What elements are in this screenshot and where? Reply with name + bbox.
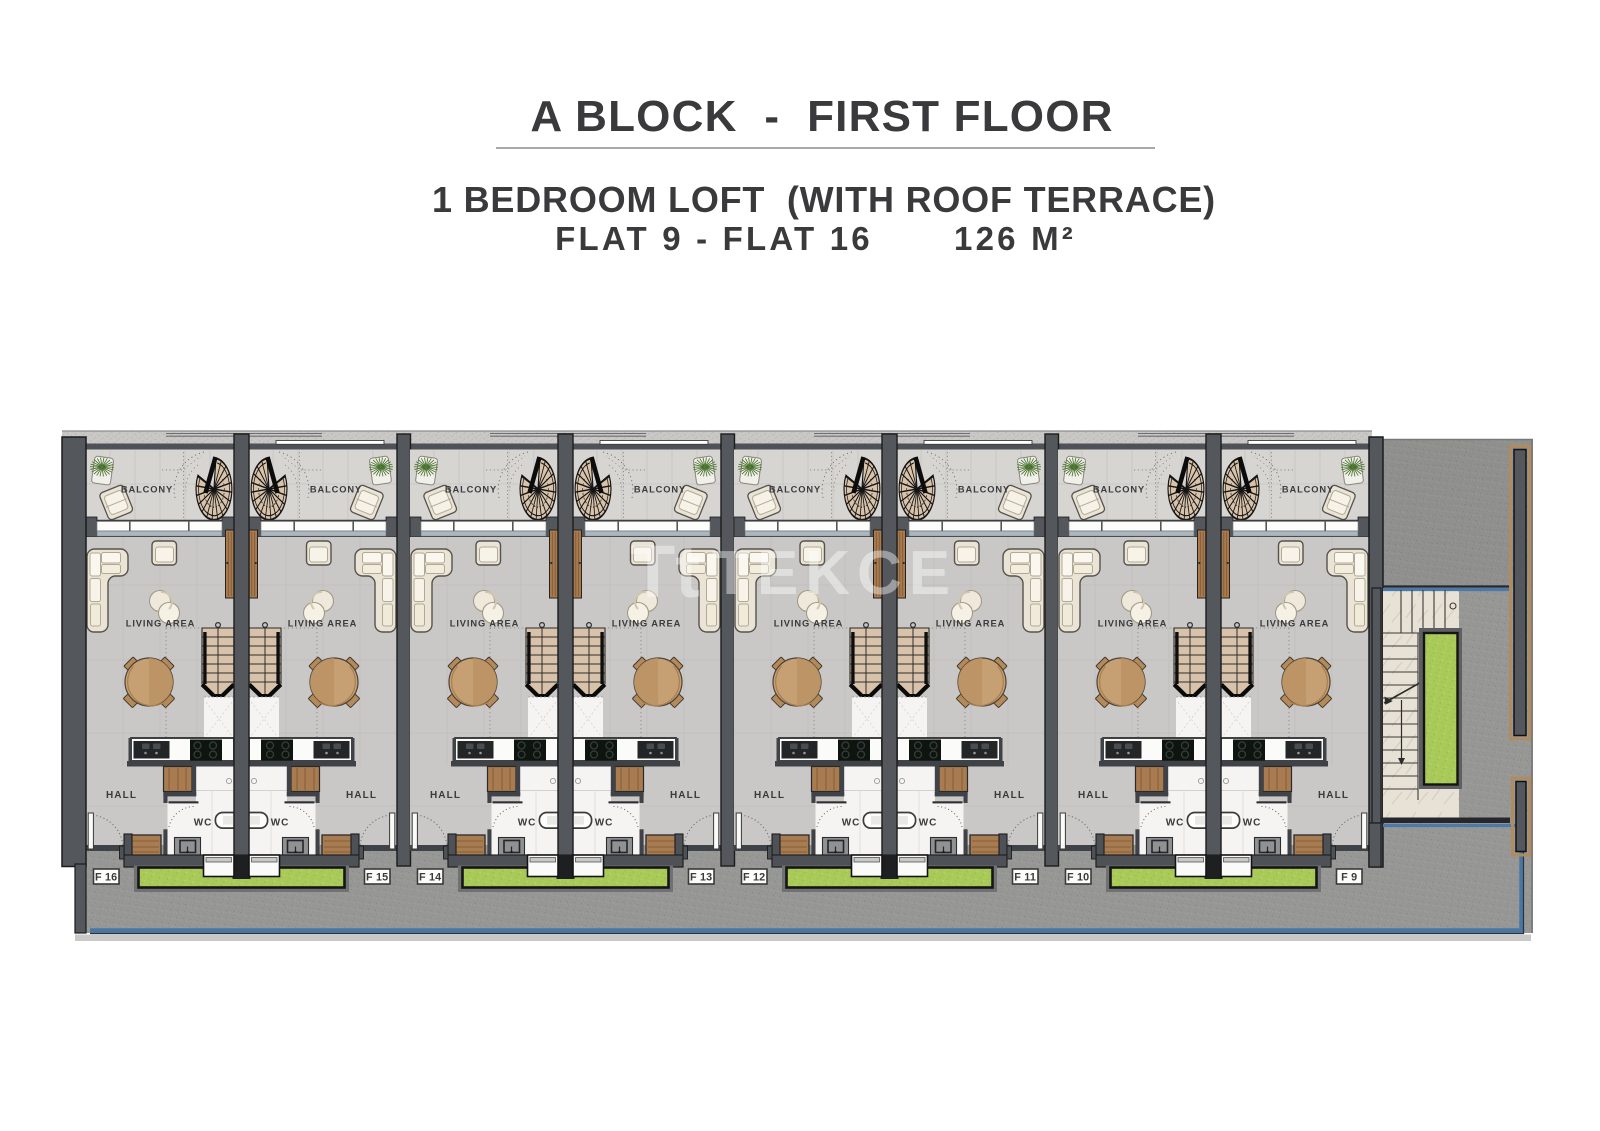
- svg-text:BALCONY: BALCONY: [1282, 485, 1334, 495]
- svg-text:126 M²: 126 M²: [954, 220, 1076, 257]
- svg-text:F 15: F 15: [366, 872, 388, 884]
- svg-text:1 BEDROOM LOFT (WITH ROOF TER: 1 BEDROOM LOFT (WITH ROOF TERRACE): [432, 179, 1216, 220]
- svg-text:TEKCE: TEKCE: [712, 539, 957, 608]
- svg-text:F 16: F 16: [95, 872, 117, 884]
- svg-text:HALL: HALL: [670, 790, 701, 801]
- svg-text:WC: WC: [271, 818, 289, 829]
- svg-text:HALL: HALL: [430, 790, 461, 801]
- svg-text:LIVING AREA: LIVING AREA: [450, 619, 519, 629]
- svg-text:LIVING AREA: LIVING AREA: [774, 619, 843, 629]
- svg-text:A BLOCK - FIRST FLOOR: A BLOCK - FIRST FLOOR: [530, 92, 1113, 141]
- svg-text:WC: WC: [1243, 818, 1261, 829]
- svg-text:BALCONY: BALCONY: [634, 485, 686, 495]
- svg-text:HALL: HALL: [1078, 790, 1109, 801]
- svg-text:WC: WC: [518, 818, 536, 829]
- svg-text:F 13: F 13: [690, 872, 712, 884]
- svg-text:WC: WC: [595, 818, 613, 829]
- svg-text:BALCONY: BALCONY: [958, 485, 1010, 495]
- svg-text:F 14: F 14: [419, 872, 441, 884]
- svg-text:BALCONY: BALCONY: [310, 485, 362, 495]
- svg-text:WC: WC: [919, 818, 937, 829]
- svg-text:BALCONY: BALCONY: [1093, 485, 1145, 495]
- svg-text:BALCONY: BALCONY: [121, 485, 173, 495]
- svg-text:WC: WC: [1166, 818, 1184, 829]
- svg-text:LIVING AREA: LIVING AREA: [936, 619, 1005, 629]
- svg-text:WC: WC: [194, 818, 212, 829]
- svg-text:F 11: F 11: [1014, 872, 1036, 884]
- svg-text:WC: WC: [842, 818, 860, 829]
- svg-text:HALL: HALL: [346, 790, 377, 801]
- svg-text:FLAT 9 - FLAT 16: FLAT 9 - FLAT 16: [555, 220, 873, 257]
- svg-text:HALL: HALL: [994, 790, 1025, 801]
- svg-text:LIVING AREA: LIVING AREA: [288, 619, 357, 629]
- svg-text:Tt: Tt: [630, 530, 700, 613]
- svg-text:BALCONY: BALCONY: [769, 485, 821, 495]
- svg-text:F 9: F 9: [1341, 872, 1357, 884]
- svg-text:HALL: HALL: [754, 790, 785, 801]
- svg-text:LIVING AREA: LIVING AREA: [1260, 619, 1329, 629]
- svg-text:HALL: HALL: [106, 790, 137, 801]
- svg-text:F 10: F 10: [1067, 872, 1089, 884]
- svg-text:LIVING AREA: LIVING AREA: [1098, 619, 1167, 629]
- svg-text:LIVING AREA: LIVING AREA: [612, 619, 681, 629]
- svg-text:F 12: F 12: [743, 872, 765, 884]
- svg-text:BALCONY: BALCONY: [445, 485, 497, 495]
- svg-text:HALL: HALL: [1318, 790, 1349, 801]
- svg-text:LIVING AREA: LIVING AREA: [126, 619, 195, 629]
